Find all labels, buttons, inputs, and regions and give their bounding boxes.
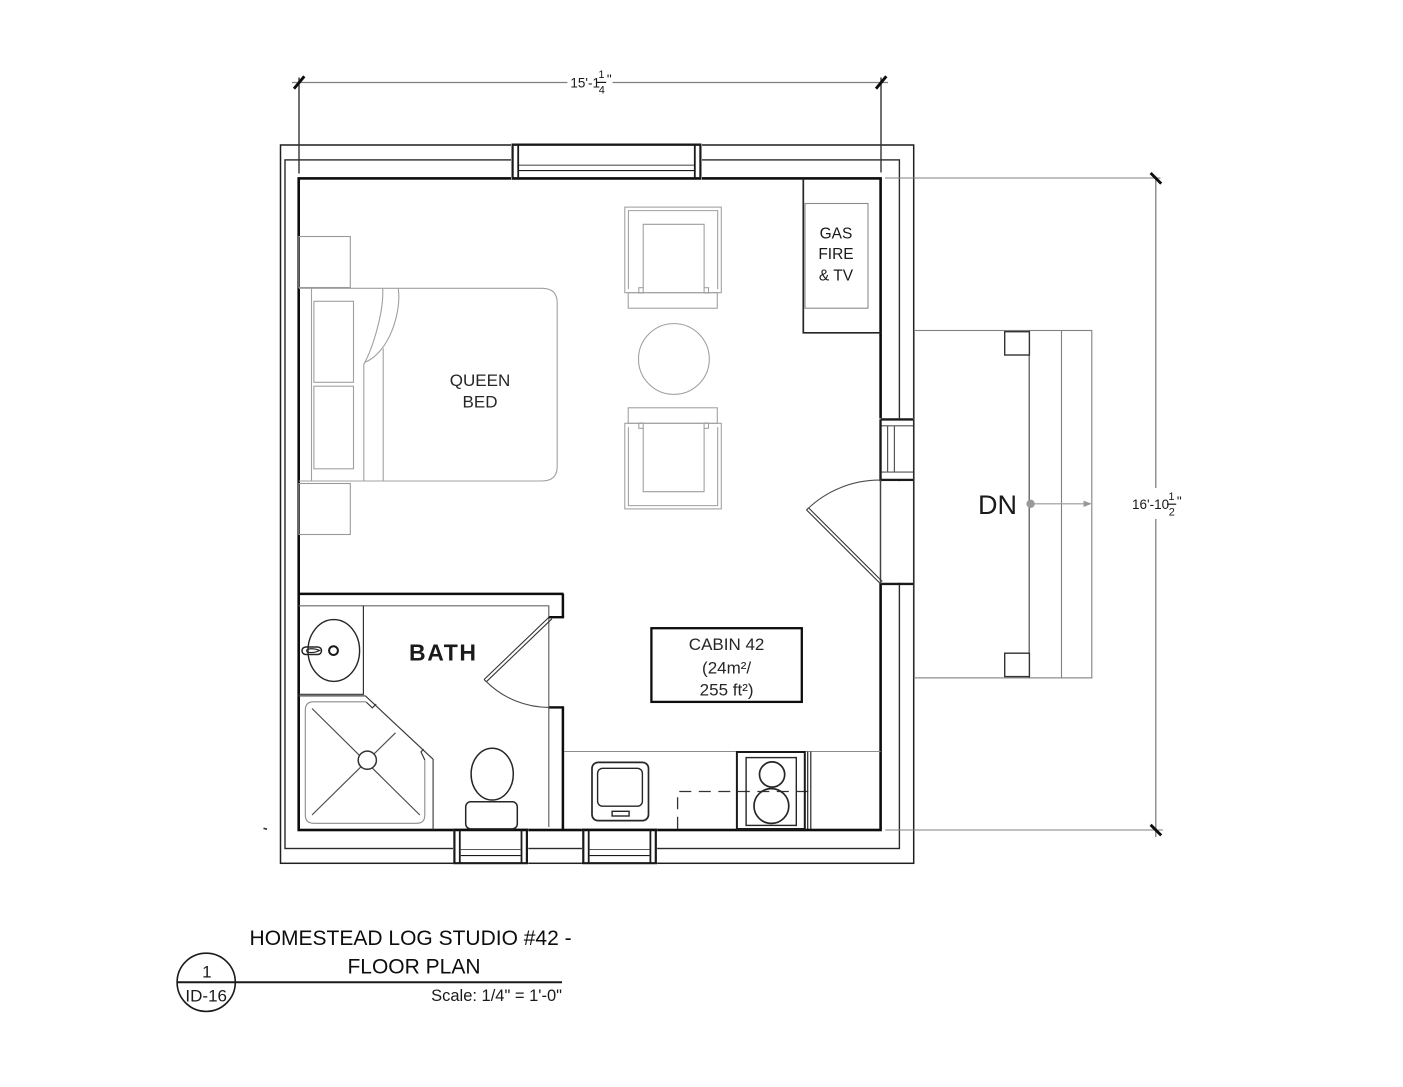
svg-text:Scale: 1/4" = 1'-0": Scale: 1/4" = 1'-0" [431,987,562,1005]
svg-text:15'-1: 15'-1 [570,75,600,90]
svg-text:(24m²/: (24m²/ [702,659,751,678]
svg-text:QUEEN: QUEEN [450,371,510,390]
svg-text:4: 4 [599,85,605,97]
svg-text:16'-10: 16'-10 [1132,497,1169,512]
svg-text:DN: DN [978,490,1017,520]
svg-text:FLOOR PLAN: FLOOR PLAN [347,956,480,979]
svg-text:& TV: & TV [819,268,854,285]
svg-text:FIRE: FIRE [818,246,853,263]
svg-text:2: 2 [1169,506,1175,518]
svg-text:1: 1 [202,963,211,982]
svg-text:1: 1 [1168,491,1174,503]
svg-text:": " [1177,494,1182,509]
svg-text:": " [607,72,612,87]
svg-text:ID-16: ID-16 [185,987,227,1006]
svg-text:GAS: GAS [820,226,853,243]
svg-text:CABIN 42: CABIN 42 [689,635,765,654]
svg-text:BED: BED [463,392,498,411]
svg-text:BATH: BATH [409,639,478,665]
svg-text:HOMESTEAD LOG STUDIO #42 -: HOMESTEAD LOG STUDIO #42 - [250,927,572,950]
svg-text:255 ft²): 255 ft²) [700,680,754,699]
svg-text:1: 1 [598,69,604,81]
